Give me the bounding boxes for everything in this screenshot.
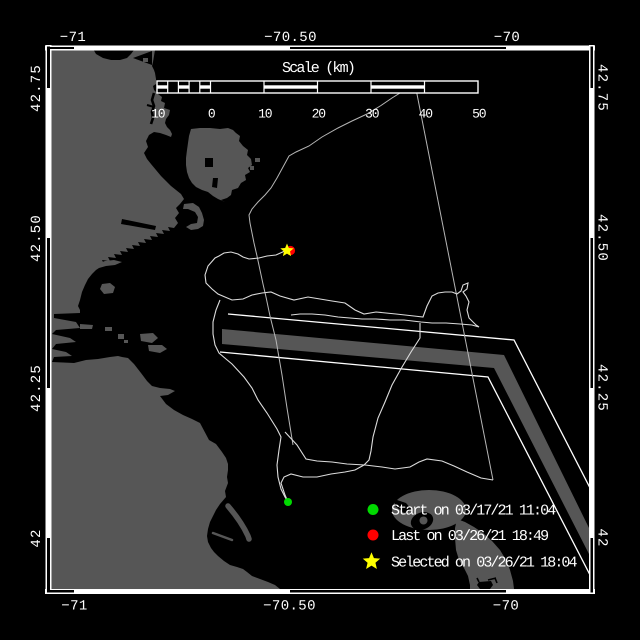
svg-text:Start on 03/17/21 11:04: Start on 03/17/21 11:04 xyxy=(391,503,556,520)
svg-text:0: 0 xyxy=(208,107,215,122)
svg-text:40: 40 xyxy=(419,107,433,122)
svg-text:Last on 03/26/21 18:49: Last on 03/26/21 18:49 xyxy=(391,528,548,545)
svg-text:−70.50: −70.50 xyxy=(263,599,316,615)
svg-text:42.75: 42.75 xyxy=(594,64,610,112)
svg-text:42: 42 xyxy=(594,528,610,547)
svg-text:42.75: 42.75 xyxy=(29,64,45,112)
svg-text:10: 10 xyxy=(258,107,272,122)
svg-text:−71: −71 xyxy=(61,599,87,615)
svg-text:Scale (km): Scale (km) xyxy=(282,60,354,77)
svg-text:−70: −70 xyxy=(493,599,519,615)
svg-text:−70.50: −70.50 xyxy=(264,30,317,46)
svg-text:50: 50 xyxy=(472,107,486,122)
svg-text:10: 10 xyxy=(151,107,165,122)
svg-text:42: 42 xyxy=(29,528,45,547)
svg-text:Selected on 03/26/21 18:04: Selected on 03/26/21 18:04 xyxy=(391,555,578,572)
svg-text:−70: −70 xyxy=(494,30,520,46)
svg-text:42.25: 42.25 xyxy=(29,364,45,412)
svg-text:42.25: 42.25 xyxy=(594,364,610,412)
svg-text:42.50: 42.50 xyxy=(594,214,610,262)
svg-text:42.50: 42.50 xyxy=(29,214,45,262)
svg-text:20: 20 xyxy=(312,107,326,122)
svg-text:−71: −71 xyxy=(60,30,86,46)
svg-text:30: 30 xyxy=(365,107,379,122)
